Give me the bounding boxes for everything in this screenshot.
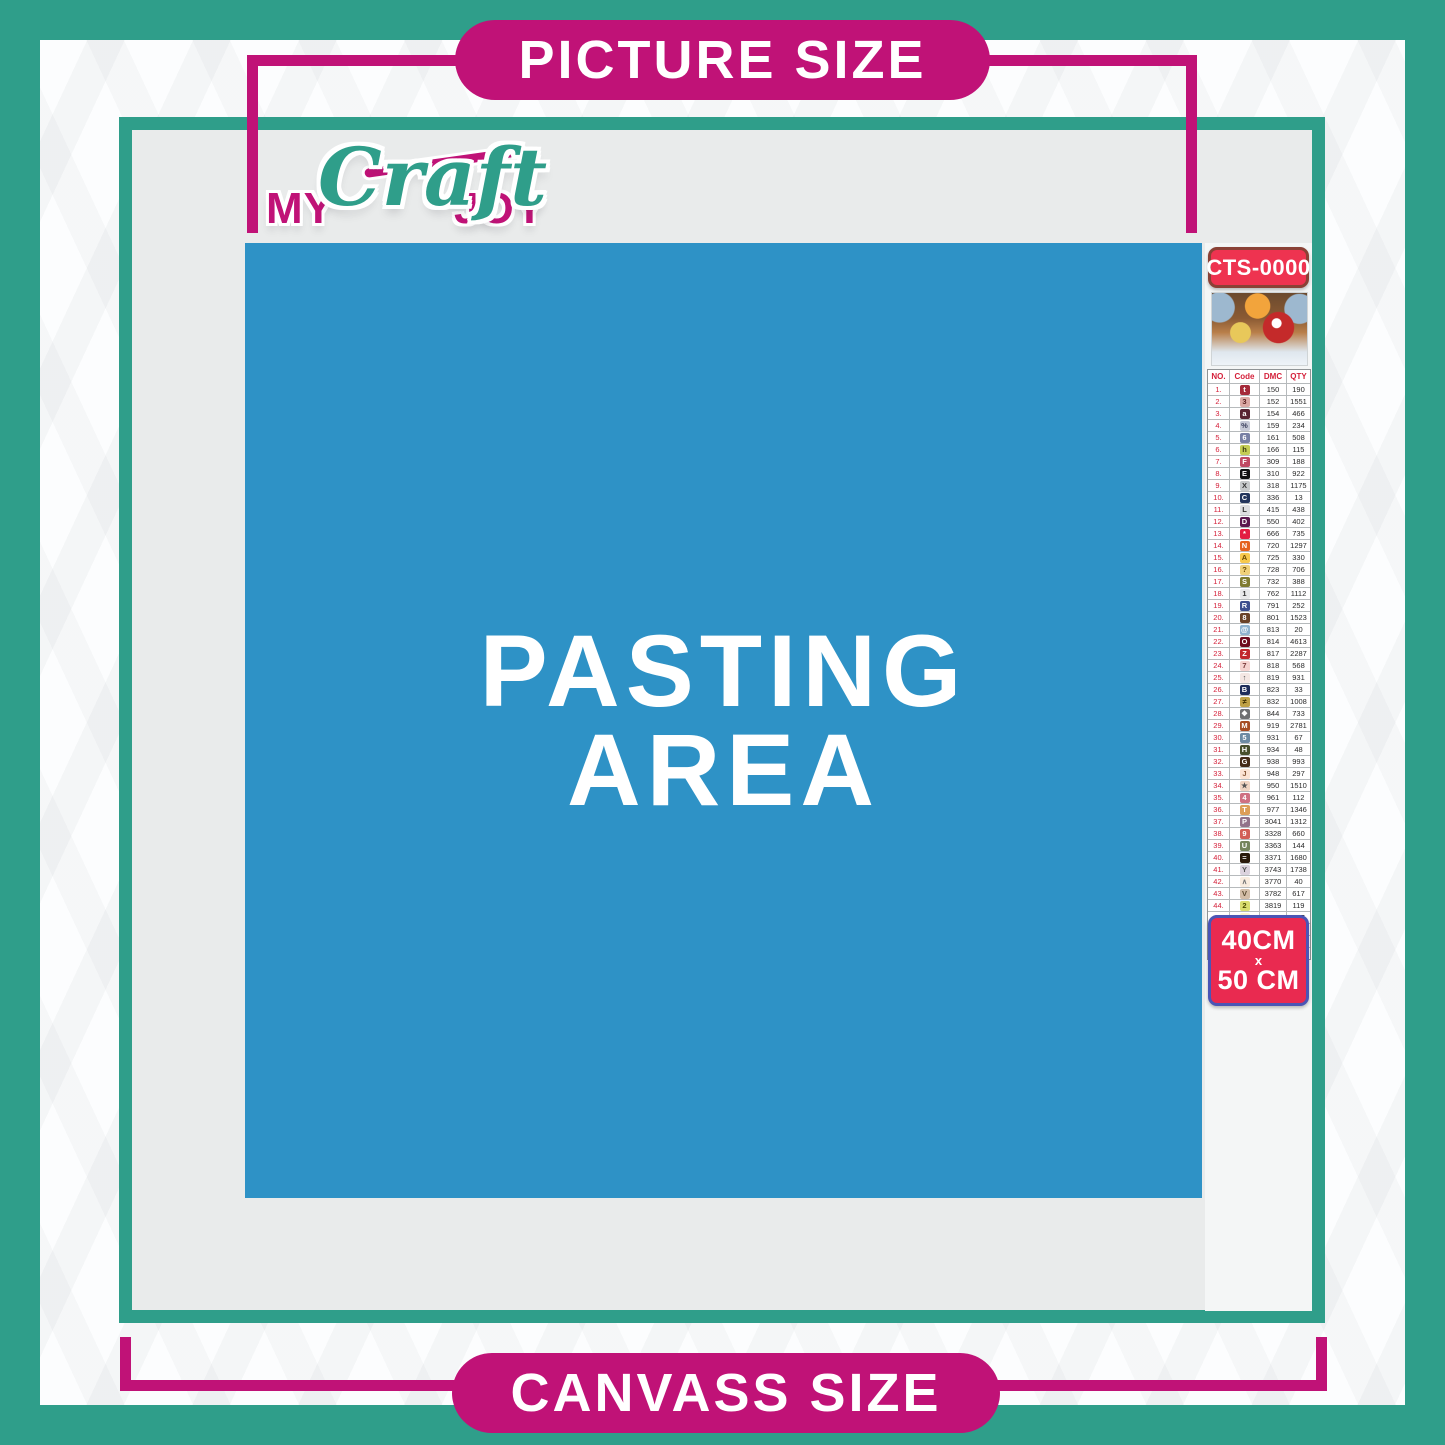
code-symbol-swatch: L	[1240, 505, 1250, 515]
code-symbol-swatch: ↑	[1240, 673, 1250, 683]
table-row: 28.❖844733	[1208, 708, 1310, 720]
code-symbol-swatch: P	[1240, 817, 1250, 827]
table-row: 25.↑819931	[1208, 672, 1310, 684]
code-symbol-swatch: ≠	[1240, 697, 1250, 707]
table-row: 3.a154466	[1208, 408, 1310, 420]
table-row: 15.A725330	[1208, 552, 1310, 564]
canvass-size-corner-left	[120, 1337, 131, 1391]
table-row: 37.P30411312	[1208, 816, 1310, 828]
code-symbol-swatch: 3	[1240, 397, 1250, 407]
table-row: 16.?728706	[1208, 564, 1310, 576]
code-symbol-swatch: Z	[1240, 649, 1250, 659]
code-symbol-swatch: 8	[1240, 613, 1250, 623]
code-symbol-swatch: D	[1240, 517, 1250, 527]
code-symbol-swatch: 4	[1240, 793, 1250, 803]
col-header-no: NO.	[1208, 370, 1230, 383]
code-symbol-swatch: =	[1240, 853, 1250, 863]
size-badge-width: 40CM	[1221, 927, 1295, 954]
code-symbol-swatch: 2	[1240, 901, 1250, 911]
picture-size-banner: PICTURE SIZE	[455, 20, 990, 100]
code-symbol-swatch: H	[1240, 745, 1250, 755]
table-row: 20.88011523	[1208, 612, 1310, 624]
code-symbol-swatch: U	[1240, 841, 1250, 851]
table-header-row: NO. Code DMC QTY	[1208, 370, 1310, 384]
table-row: 14.N7201297	[1208, 540, 1310, 552]
table-row: 30.593167	[1208, 732, 1310, 744]
table-row: 40.=33711680	[1208, 852, 1310, 864]
col-header-code: Code	[1230, 370, 1260, 383]
code-symbol-swatch: ∧	[1240, 877, 1250, 887]
col-header-dmc: DMC	[1260, 370, 1287, 383]
code-symbol-swatch: 1	[1240, 589, 1250, 599]
table-row: 9.X3181175	[1208, 480, 1310, 492]
table-row: 23.Z8172287	[1208, 648, 1310, 660]
code-symbol-swatch: %	[1240, 421, 1250, 431]
code-symbol-swatch: *	[1240, 529, 1250, 539]
code-symbol-swatch: 5	[1240, 733, 1250, 743]
table-row: 43.V3782617	[1208, 888, 1310, 900]
table-row: 17.S732388	[1208, 576, 1310, 588]
table-row: 36.T9771346	[1208, 804, 1310, 816]
code-symbol-swatch: t	[1240, 385, 1250, 395]
code-symbol-swatch: B	[1240, 685, 1250, 695]
code-symbol-swatch: A	[1240, 553, 1250, 563]
code-symbol-swatch: O	[1240, 637, 1250, 647]
code-symbol-swatch: C	[1240, 493, 1250, 503]
table-row: 39.U3363144	[1208, 840, 1310, 852]
table-row: 29.M9192781	[1208, 720, 1310, 732]
table-row: 12.D550402	[1208, 516, 1310, 528]
mycraftjoy-logo: MY JOY Craft	[260, 140, 550, 248]
table-row: 7.F309188	[1208, 456, 1310, 468]
pasting-area: PASTING AREA	[245, 243, 1202, 1198]
code-symbol-swatch: S	[1240, 577, 1250, 587]
table-row: 19.R791252	[1208, 600, 1310, 612]
table-row: 21.@81320	[1208, 624, 1310, 636]
table-row: 1.t150190	[1208, 384, 1310, 396]
table-row: 18.17621112	[1208, 588, 1310, 600]
table-row: 41.Y37431738	[1208, 864, 1310, 876]
canvas-size-badge: 40CM x 50 CM	[1208, 915, 1309, 1006]
code-symbol-swatch: J	[1240, 769, 1250, 779]
table-row: 32.G938993	[1208, 756, 1310, 768]
code-symbol-swatch: ❖	[1240, 709, 1250, 719]
table-row: 26.B82333	[1208, 684, 1310, 696]
code-symbol-swatch: 9	[1240, 829, 1250, 839]
table-row: 34.★9501510	[1208, 780, 1310, 792]
picture-size-corner-left	[247, 55, 258, 233]
dmc-table-body: 1.t1501902.315215513.a1544664.%1592345.6…	[1208, 384, 1310, 959]
code-symbol-swatch: R	[1240, 601, 1250, 611]
pasting-area-label-line2: AREA	[567, 721, 880, 820]
table-row: 6.h166115	[1208, 444, 1310, 456]
code-symbol-swatch: ?	[1240, 565, 1250, 575]
table-row: 24.7818568	[1208, 660, 1310, 672]
canvass-size-banner: CANVASS SIZE	[452, 1353, 1000, 1433]
code-symbol-swatch: 6	[1240, 433, 1250, 443]
code-symbol-swatch: 7	[1240, 661, 1250, 671]
diamond-painting-canvas-diagram: MY JOY Craft PASTING AREA CTS-0000 NO. C…	[0, 0, 1445, 1445]
pasting-area-label-line1: PASTING	[480, 622, 968, 721]
code-symbol-swatch: V	[1240, 889, 1250, 899]
code-symbol-swatch: a	[1240, 409, 1250, 419]
thumbnail-image	[1211, 292, 1308, 366]
code-symbol-swatch: F	[1240, 457, 1250, 467]
table-row: 31.H93448	[1208, 744, 1310, 756]
code-symbol-swatch: M	[1240, 721, 1250, 731]
code-symbol-swatch: h	[1240, 445, 1250, 455]
table-row: 8.E310922	[1208, 468, 1310, 480]
table-row: 42.∧377040	[1208, 876, 1310, 888]
table-row: 13.*666735	[1208, 528, 1310, 540]
dmc-color-table: NO. Code DMC QTY 1.t1501902.315215513.a1…	[1207, 369, 1311, 960]
col-header-qty: QTY	[1287, 370, 1310, 383]
table-row: 44.23819119	[1208, 900, 1310, 912]
table-row: 27.≠8321008	[1208, 696, 1310, 708]
sku-badge: CTS-0000	[1208, 247, 1309, 288]
table-row: 2.31521551	[1208, 396, 1310, 408]
size-badge-height: 50 CM	[1217, 967, 1299, 994]
table-row: 35.4961112	[1208, 792, 1310, 804]
code-symbol-swatch: G	[1240, 757, 1250, 767]
code-symbol-swatch: N	[1240, 541, 1250, 551]
picture-size-corner-right	[1186, 55, 1197, 233]
table-row: 4.%159234	[1208, 420, 1310, 432]
code-symbol-swatch: X	[1240, 481, 1250, 491]
code-symbol-swatch: ★	[1240, 781, 1250, 791]
code-symbol-swatch: E	[1240, 469, 1250, 479]
logo-text-craft: Craft	[318, 130, 547, 224]
table-row: 33.J948297	[1208, 768, 1310, 780]
table-row: 5.6161508	[1208, 432, 1310, 444]
table-row: 10.C33613	[1208, 492, 1310, 504]
code-symbol-swatch: T	[1240, 805, 1250, 815]
code-symbol-swatch: Y	[1240, 865, 1250, 875]
code-symbol-swatch: @	[1240, 625, 1250, 635]
table-row: 38.93328660	[1208, 828, 1310, 840]
table-row: 22.O8144613	[1208, 636, 1310, 648]
canvass-size-corner-right	[1316, 1337, 1327, 1391]
table-row: 11.L415438	[1208, 504, 1310, 516]
